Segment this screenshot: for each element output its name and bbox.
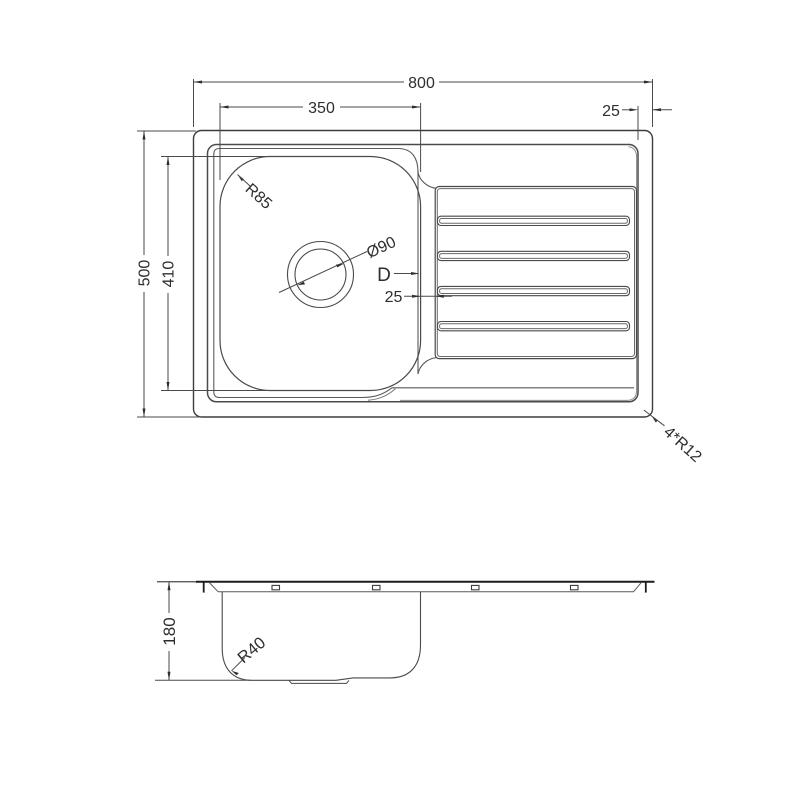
svg-text:350: 350 [308,100,335,117]
svg-text:180: 180 [160,617,179,645]
svg-text:500: 500 [137,260,154,287]
svg-text:25: 25 [385,289,403,306]
svg-text:410: 410 [161,261,178,288]
svg-text:D: D [377,265,391,286]
svg-text:800: 800 [408,75,435,92]
svg-text:25: 25 [602,103,620,120]
